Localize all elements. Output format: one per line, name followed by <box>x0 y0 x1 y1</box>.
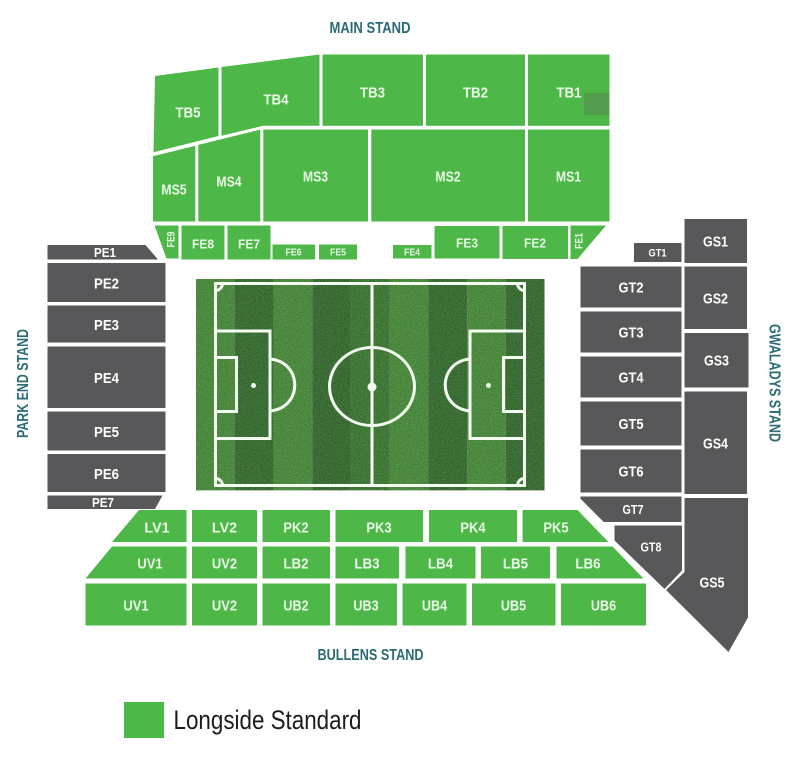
svg-text:GT2: GT2 <box>619 279 644 296</box>
svg-text:LB4: LB4 <box>428 555 454 572</box>
svg-text:GT1: GT1 <box>649 247 667 259</box>
svg-text:GWALADYS STAND: GWALADYS STAND <box>766 324 783 442</box>
svg-text:GT4: GT4 <box>619 369 645 386</box>
svg-text:LB6: LB6 <box>575 555 600 572</box>
svg-text:TB1: TB1 <box>556 84 581 101</box>
svg-text:FE7: FE7 <box>238 238 260 252</box>
svg-text:GS3: GS3 <box>704 352 729 369</box>
svg-text:TB5: TB5 <box>175 104 200 121</box>
svg-text:FE5: FE5 <box>330 248 346 259</box>
svg-text:MS1: MS1 <box>556 168 581 185</box>
svg-text:LB2: LB2 <box>283 555 308 572</box>
svg-text:LV1: LV1 <box>144 519 169 536</box>
svg-text:PE7: PE7 <box>92 495 114 510</box>
svg-text:GT8: GT8 <box>641 541 662 555</box>
svg-text:PK5: PK5 <box>543 519 568 536</box>
svg-text:GT6: GT6 <box>619 463 644 480</box>
svg-text:MS3: MS3 <box>303 168 328 185</box>
svg-text:FE1: FE1 <box>573 233 585 249</box>
svg-text:PE3: PE3 <box>94 317 119 334</box>
svg-text:GS5: GS5 <box>700 574 725 591</box>
svg-text:FE6: FE6 <box>286 248 302 259</box>
svg-text:Longside Standard: Longside Standard <box>174 705 362 735</box>
svg-text:PE4: PE4 <box>94 370 120 387</box>
svg-text:PE2: PE2 <box>94 275 119 292</box>
svg-text:UB2: UB2 <box>283 597 308 614</box>
svg-text:FE4: FE4 <box>404 247 420 258</box>
svg-text:UB3: UB3 <box>353 597 378 614</box>
svg-text:FE2: FE2 <box>524 237 546 251</box>
svg-text:TB2: TB2 <box>463 84 488 101</box>
svg-text:PE6: PE6 <box>94 466 119 483</box>
svg-text:UV2: UV2 <box>212 597 237 614</box>
svg-text:UB6: UB6 <box>591 597 616 614</box>
svg-text:PK4: PK4 <box>460 519 486 536</box>
svg-text:MS5: MS5 <box>161 181 186 198</box>
svg-text:UV1: UV1 <box>123 597 148 614</box>
svg-text:PE1: PE1 <box>94 245 116 260</box>
svg-text:FE9: FE9 <box>165 232 177 248</box>
svg-text:LB5: LB5 <box>503 555 528 572</box>
svg-text:GS1: GS1 <box>703 233 728 250</box>
svg-text:FE3: FE3 <box>456 237 478 251</box>
svg-text:PARK END STAND: PARK END STAND <box>15 329 32 438</box>
svg-text:GS4: GS4 <box>703 435 729 452</box>
svg-text:UV2: UV2 <box>212 555 237 572</box>
svg-text:GT7: GT7 <box>623 503 644 517</box>
svg-text:UB4: UB4 <box>422 597 448 614</box>
svg-text:LB3: LB3 <box>354 555 379 572</box>
svg-text:UV1: UV1 <box>137 555 162 572</box>
svg-text:MS4: MS4 <box>216 173 242 190</box>
svg-text:PK3: PK3 <box>366 519 391 536</box>
svg-text:TB4: TB4 <box>263 91 289 108</box>
svg-text:PE5: PE5 <box>94 424 119 441</box>
svg-text:UB5: UB5 <box>501 597 526 614</box>
svg-text:TB3: TB3 <box>360 84 385 101</box>
svg-text:GT3: GT3 <box>619 324 644 341</box>
svg-text:FE8: FE8 <box>192 238 214 252</box>
svg-text:GS2: GS2 <box>703 290 728 307</box>
svg-text:MS2: MS2 <box>435 168 460 185</box>
svg-text:MAIN STAND: MAIN STAND <box>330 20 411 37</box>
svg-text:LV2: LV2 <box>212 519 237 536</box>
svg-text:PK2: PK2 <box>283 519 308 536</box>
svg-text:GT5: GT5 <box>619 416 644 433</box>
svg-text:BULLENS STAND: BULLENS STAND <box>318 647 424 664</box>
